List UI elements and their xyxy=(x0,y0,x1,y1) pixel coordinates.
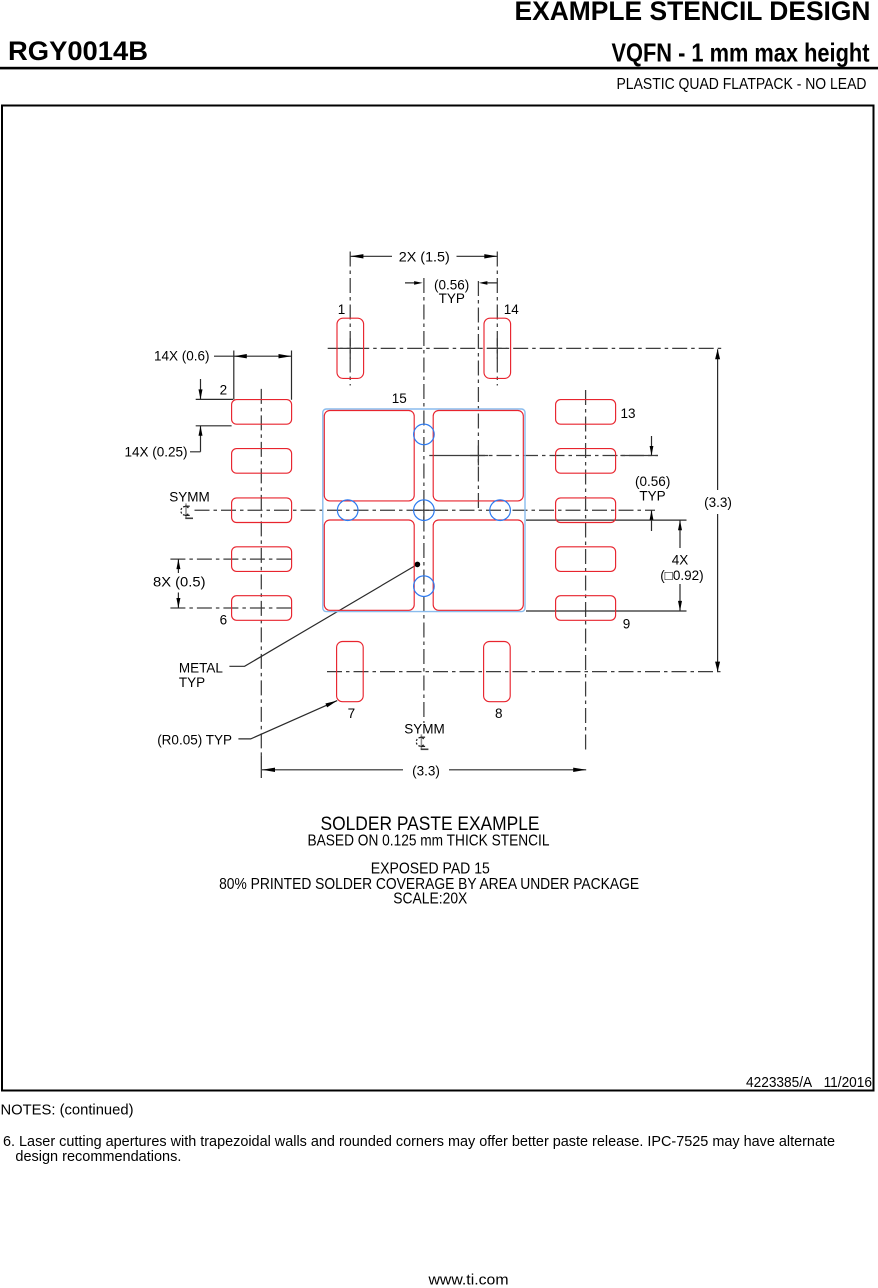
svg-text:VQFN - 1 mm max height: VQFN - 1 mm max height xyxy=(612,37,870,67)
svg-text:EXAMPLE STENCIL DESIGN: EXAMPLE STENCIL DESIGN xyxy=(515,0,871,26)
svg-text:2X (1.5): 2X (1.5) xyxy=(399,249,450,264)
svg-text:14: 14 xyxy=(504,302,520,317)
svg-text:TYP: TYP xyxy=(439,291,465,306)
svg-text:(□0.92): (□0.92) xyxy=(660,568,703,583)
svg-text:www.ti.com: www.ti.com xyxy=(427,1271,508,1288)
svg-text:14X (0.25): 14X (0.25) xyxy=(124,444,187,459)
svg-text:BASED ON 0.125 mm THICK STENCI: BASED ON 0.125 mm THICK STENCIL xyxy=(308,832,550,849)
svg-text:(R0.05) TYP: (R0.05) TYP xyxy=(157,733,232,748)
svg-text:6: 6 xyxy=(220,612,228,627)
svg-text:SYMM: SYMM xyxy=(404,722,445,737)
svg-text:9: 9 xyxy=(623,617,631,632)
svg-text:13: 13 xyxy=(620,406,635,421)
svg-text:PLASTIC QUAD FLATPACK - NO LEA: PLASTIC QUAD FLATPACK - NO LEAD xyxy=(617,76,867,93)
svg-text:1: 1 xyxy=(338,302,346,317)
svg-text:2: 2 xyxy=(220,383,228,398)
svg-text:SYMM: SYMM xyxy=(169,490,210,505)
svg-text:SCALE:20X: SCALE:20X xyxy=(393,891,468,908)
svg-text:8: 8 xyxy=(495,706,503,721)
svg-text:METAL: METAL xyxy=(179,661,223,676)
svg-text:design recommendations.: design recommendations. xyxy=(15,1148,181,1165)
svg-text:4223385/A 11/2016: 4223385/A 11/2016 xyxy=(746,1075,872,1091)
svg-text:4X: 4X xyxy=(672,552,689,567)
svg-text:8X (0.5): 8X (0.5) xyxy=(153,575,206,590)
svg-text:14X (0.6): 14X (0.6) xyxy=(154,349,210,364)
svg-text:7: 7 xyxy=(348,706,356,721)
svg-text:(3.3): (3.3) xyxy=(412,763,440,778)
svg-text:NOTES: (continued): NOTES: (continued) xyxy=(1,1102,134,1119)
svg-text:(3.3): (3.3) xyxy=(704,495,732,510)
svg-text:15: 15 xyxy=(392,391,407,406)
svg-text:TYP: TYP xyxy=(639,488,665,503)
svg-text:(0.56): (0.56) xyxy=(635,474,670,489)
svg-text:RGY0014B: RGY0014B xyxy=(8,36,148,66)
svg-text:TYP: TYP xyxy=(179,675,205,690)
